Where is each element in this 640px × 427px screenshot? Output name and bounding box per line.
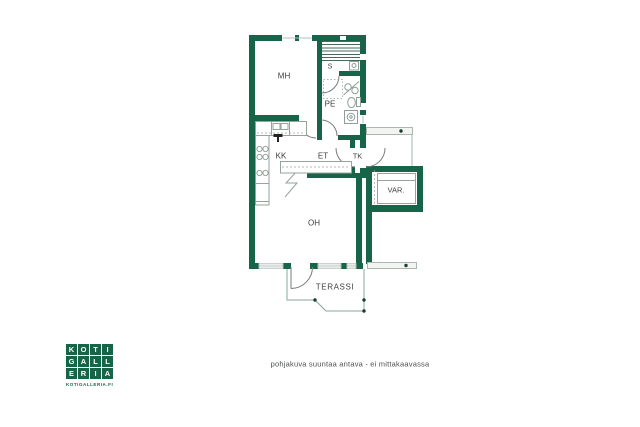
room-label-s: S bbox=[328, 64, 333, 71]
logo-tile: A bbox=[102, 368, 113, 379]
terrace-door-arc bbox=[291, 267, 313, 289]
terrace-post-dot bbox=[362, 309, 365, 312]
logo-tile: R bbox=[78, 368, 89, 379]
logo-letter-grid: K O T I G A L L E R I A bbox=[66, 344, 113, 379]
logo-tile: G bbox=[66, 356, 77, 367]
terrace-post-dot bbox=[313, 298, 316, 301]
fence-post-dot bbox=[404, 264, 407, 267]
bottom-fence bbox=[368, 263, 417, 269]
room-label-var: VAR. bbox=[388, 186, 405, 195]
logo-website: KOTIGALLERIA.FI bbox=[66, 382, 113, 387]
pe-door-arc bbox=[321, 120, 337, 136]
counter-end-mark bbox=[285, 170, 298, 197]
logo-tile: E bbox=[66, 368, 77, 379]
sauna-heater-icon bbox=[350, 62, 359, 71]
terrace-post-dot bbox=[362, 298, 365, 301]
logo-tile: I bbox=[90, 368, 101, 379]
logo-tile: T bbox=[90, 344, 101, 355]
room-label-mh: MH bbox=[278, 72, 290, 81]
fridge-icon bbox=[256, 184, 270, 202]
logo-tile: O bbox=[78, 344, 89, 355]
kotigalleria-logo: K O T I G A L L E R I A KOTIGALLERIA.FI bbox=[66, 344, 113, 387]
logo-tile: L bbox=[102, 356, 113, 367]
room-label-terassi: TERASSI bbox=[316, 283, 354, 292]
room-label-kk: KK bbox=[276, 152, 287, 161]
floorplan-canvas: MH S PE KK ET TK OH VAR. TERASSI pohjaku… bbox=[0, 0, 640, 427]
sink-icon bbox=[273, 124, 280, 130]
faucet-icon bbox=[274, 134, 283, 137]
front-door-arc bbox=[366, 148, 385, 167]
toilet-icon bbox=[357, 98, 361, 107]
logo-tile: I bbox=[102, 344, 113, 355]
disclaimer-text: pohjakuva suuntaa antava - ei mittakaava… bbox=[271, 360, 430, 369]
logo-tile: K bbox=[66, 344, 77, 355]
logo-tile: A bbox=[78, 356, 89, 367]
room-label-oh: OH bbox=[308, 219, 320, 228]
room-label-tk: TK bbox=[353, 152, 363, 161]
room-label-pe: PE bbox=[325, 100, 336, 109]
washbasin-icon bbox=[352, 87, 358, 93]
sink-icon bbox=[281, 124, 288, 130]
toilet-icon bbox=[348, 98, 356, 108]
room-label-et: ET bbox=[318, 152, 328, 161]
window-lines bbox=[259, 38, 363, 268]
faucet-icon bbox=[277, 137, 279, 142]
door-arcs bbox=[291, 76, 385, 289]
hall-closet bbox=[281, 162, 352, 174]
fence-post-dot bbox=[399, 129, 402, 132]
logo-tile: L bbox=[90, 356, 101, 367]
washing-machine-icon bbox=[345, 111, 358, 124]
top-fence bbox=[367, 128, 413, 135]
sauna-door-arc bbox=[322, 76, 339, 93]
